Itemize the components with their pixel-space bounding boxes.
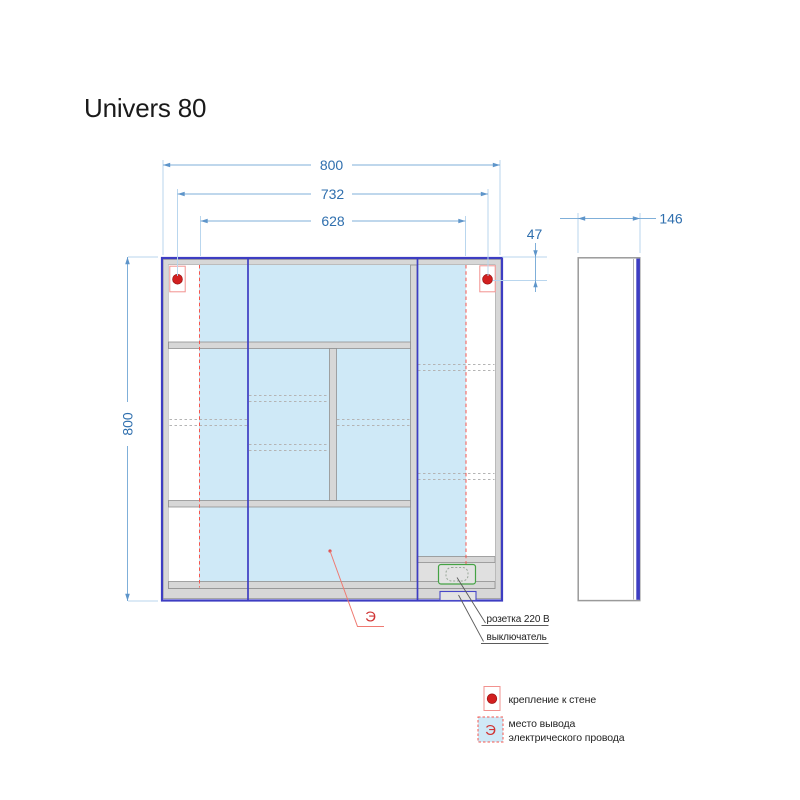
dim-height-value: 800 bbox=[120, 412, 136, 436]
legend-zone-label-line2: электрического провода bbox=[509, 732, 625, 744]
dim-zone-width-value: 628 bbox=[321, 213, 345, 229]
socket-compartment-shelf bbox=[417, 557, 495, 563]
dim-depth-value: 146 bbox=[659, 211, 683, 227]
dim-mount-offset-value: 47 bbox=[527, 226, 543, 242]
drawing-canvas: Univers 80 bbox=[0, 0, 800, 800]
legend: крепление к стене Э место вывода электри… bbox=[478, 687, 625, 745]
shelf-bottom bbox=[169, 501, 411, 508]
dim-mount-spacing-value: 732 bbox=[321, 186, 345, 202]
dim-width-value: 800 bbox=[320, 157, 344, 173]
switch-label: выключатель bbox=[487, 632, 547, 643]
legend-zone-label-line1: место вывода bbox=[509, 718, 576, 730]
legend-wall-mount: крепление к стене bbox=[484, 687, 596, 711]
front-view bbox=[162, 258, 502, 601]
shelf-top bbox=[169, 342, 411, 349]
side-door-edge bbox=[636, 259, 640, 600]
legend-wire-zone: Э место вывода электрического провода bbox=[478, 717, 625, 744]
legend-zone-symbol: Э bbox=[485, 722, 496, 739]
right-wall-post bbox=[411, 265, 418, 589]
legend-mount-dot-icon bbox=[487, 694, 497, 704]
legend-mount-label: крепление к стене bbox=[509, 694, 597, 706]
page-title: Univers 80 bbox=[84, 93, 206, 123]
technical-drawing-page: Univers 80 bbox=[0, 0, 800, 800]
center-divider bbox=[330, 349, 337, 501]
socket-220v bbox=[439, 565, 476, 585]
switch-leader-line bbox=[459, 595, 484, 642]
side-body bbox=[578, 258, 640, 601]
side-view bbox=[578, 258, 640, 601]
socket-label: розетка 220 В bbox=[487, 614, 550, 625]
wire-zone-symbol: Э bbox=[365, 609, 376, 626]
